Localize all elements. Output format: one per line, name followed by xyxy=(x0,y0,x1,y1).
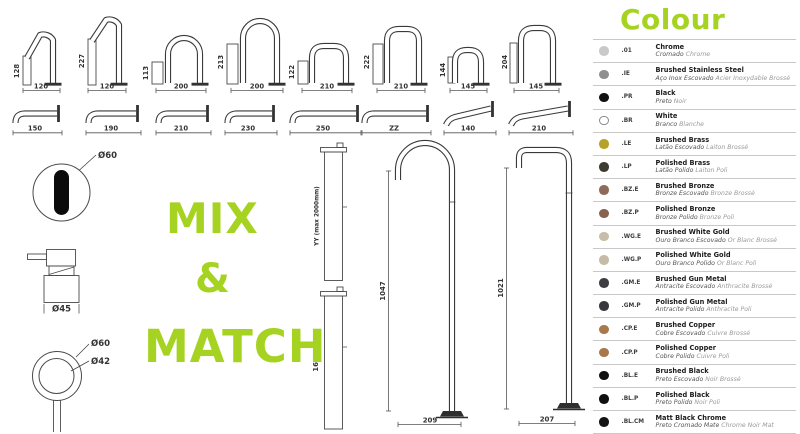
colour-legend: Colour .01ChromeCromado Chrome.IEBrushed… xyxy=(593,0,800,434)
finish-name: Chrome xyxy=(656,43,797,52)
dimension-label: 210 xyxy=(320,82,334,90)
dimension-label: 1021 xyxy=(497,278,505,298)
dimension-label: 145 xyxy=(529,82,543,90)
finish-name-translations: Latão Escovado Laiton Brossé xyxy=(656,144,797,152)
riser-height-label: YY (max 2000mm) xyxy=(315,186,321,247)
dimension-label: 207 xyxy=(540,415,555,423)
knob-drawing: Ø60Ø42 xyxy=(33,338,111,432)
wall-spout-2: 190 xyxy=(86,105,141,135)
finish-name-pt: Antracite Polido xyxy=(656,306,707,313)
finish-name-translations: Branco Blanche xyxy=(656,121,797,129)
wall-spout-3: 210 xyxy=(156,105,211,135)
finish-names: Polished White GoldOuro Branco Polido Or… xyxy=(656,251,797,268)
finish-name: Polished Bronze xyxy=(656,205,797,214)
colour-row: .LPPolished BrassLatão Polido Laiton Pol… xyxy=(593,156,796,179)
finish-swatch-dot xyxy=(599,116,609,126)
finish-swatch-dot xyxy=(599,70,609,80)
top-spout-1: 128120 xyxy=(13,34,62,93)
top-spout-7: 144145 xyxy=(439,50,490,93)
finish-name-pt: Ouro Branco Escovado xyxy=(656,237,728,244)
finish-code: .BL.P xyxy=(622,396,656,402)
finish-swatch-dot xyxy=(599,278,609,288)
finish-names: Polished BrassLatão Polido Laiton Poli xyxy=(656,159,797,176)
finish-name: Brushed Brass xyxy=(656,136,797,145)
finish-name-pt: Preto Escovado xyxy=(656,376,706,383)
finish-name: Brushed Black xyxy=(656,367,797,376)
finish-names: Polished Gun MetalAntracite Polido Anthr… xyxy=(656,298,797,315)
dimension-label: 222 xyxy=(363,55,371,69)
wall-spout-8: 210 xyxy=(509,101,573,135)
finish-name: Brushed Copper xyxy=(656,321,797,330)
finish-name: Polished White Gold xyxy=(656,251,797,260)
wall-spout-1: 150 xyxy=(13,105,62,135)
dimension-label: 209 xyxy=(423,416,438,424)
finish-name-translations: Aço Inox Escovado Acier Inoxydable Bross… xyxy=(656,75,797,83)
finish-name: Black xyxy=(656,89,797,98)
finish-name-pt: Preto xyxy=(656,98,674,105)
dimension-label: 213 xyxy=(217,55,225,69)
top-spout-3: 113200 xyxy=(142,38,209,93)
finish-name-pt: Preto Polido xyxy=(656,399,695,406)
colour-list: .01ChromeCromado Chrome.IEBrushed Stainl… xyxy=(593,39,796,434)
finish-name-pt: Latão Polido xyxy=(656,167,696,174)
colour-title: Colour xyxy=(620,3,725,36)
top-spout-5: 122210 xyxy=(288,46,355,93)
finish-names: BlackPreto Noir xyxy=(656,89,797,106)
colour-row: .GM.PPolished Gun MetalAntracite Polido … xyxy=(593,295,796,318)
colour-row: .CP.PPolished CopperCobre Polido Cuivre … xyxy=(593,341,796,364)
finish-name-translations: Bronze Escovado Bronze Brossé xyxy=(656,190,797,198)
finish-name-pt: Latão Escovado xyxy=(656,144,707,151)
finish-name-pt: Cobre Polido xyxy=(656,353,697,360)
finish-code: .LP xyxy=(622,164,656,170)
colour-row: .01ChromeCromado Chrome xyxy=(593,40,796,63)
dimension-label: ZZ xyxy=(389,125,399,133)
finish-name-translations: Cromado Chrome xyxy=(656,51,797,59)
colour-row: .BRWhiteBranco Blanche xyxy=(593,110,796,133)
finish-swatch-dot xyxy=(599,417,609,427)
finish-name-pt: Cobre Escovado xyxy=(656,330,708,337)
finish-name-translations: Ouro Branco Escovado Or Blanc Brossé xyxy=(656,237,797,245)
finish-names: Brushed BlackPreto Escovado Noir Brossé xyxy=(656,367,797,384)
finish-swatch-dot xyxy=(599,325,609,335)
finish-swatch-dot xyxy=(599,348,609,358)
finish-name-fr: Or Blanc Poli xyxy=(717,260,756,267)
dimension-label: 210 xyxy=(532,125,546,133)
finish-name-fr: Laiton Poli xyxy=(695,167,727,174)
finish-names: Brushed White GoldOuro Branco Escovado O… xyxy=(656,228,797,245)
finish-name-fr: Noir Poli xyxy=(694,399,720,406)
finish-names: Brushed Stainless SteelAço Inox Escovado… xyxy=(656,66,797,83)
finish-name-pt: Bronze Polido xyxy=(656,214,700,221)
dimension-label: 1047 xyxy=(379,281,387,301)
dimension-label: 120 xyxy=(34,82,48,90)
finish-names: Matt Black ChromePreto Cromado Mate Chro… xyxy=(656,414,797,431)
finish-names: Brushed Gun MetalAntracite Escovado Anth… xyxy=(656,275,797,292)
finish-names: Polished CopperCobre Polido Cuivre Poli xyxy=(656,344,797,361)
finish-name-fr: Anthracite Brossé xyxy=(717,283,772,290)
finish-names: ChromeCromado Chrome xyxy=(656,43,797,60)
finish-swatch-dot xyxy=(599,301,609,311)
finish-code: .PR xyxy=(622,94,656,100)
finish-swatch-dot xyxy=(599,46,609,56)
ceiling-riser-custom: YY (max 2000mm) xyxy=(315,143,348,281)
finish-name-translations: Preto Escovado Noir Brossé xyxy=(656,376,797,384)
dimension-label: 250 xyxy=(316,125,330,133)
finish-name-fr: Chrome Noir Mat xyxy=(721,422,774,429)
finish-name-fr: Laiton Brossé xyxy=(706,144,748,151)
knob-outer-diameter-label: Ø60 xyxy=(91,338,110,349)
finish-code: .CP.E xyxy=(622,326,656,332)
colour-row: .PRBlackPreto Noir xyxy=(593,86,796,109)
finish-name-pt: Antracite Escovado xyxy=(656,283,718,290)
finish-code: .IE xyxy=(622,71,656,77)
finish-swatch-dot xyxy=(599,394,609,404)
finish-code: .CP.P xyxy=(622,350,656,356)
finish-code: .BL.E xyxy=(622,373,656,379)
finish-swatch-dot xyxy=(599,232,609,242)
finish-name-translations: Preto Cromado Mate Chrome Noir Mat xyxy=(656,422,797,430)
finish-name-translations: Antracite Polido Anthracite Poli xyxy=(656,306,797,314)
finish-code: .BR xyxy=(622,118,656,124)
finish-name-pt: Bronze Escovado xyxy=(656,190,711,197)
match-text: MATCH xyxy=(144,324,327,369)
floor-spout-1: 1047209 xyxy=(379,143,468,427)
wall-spout-4: 230 xyxy=(225,105,277,135)
wall-spout-6: ZZ xyxy=(362,105,431,135)
ampersand-text: & xyxy=(195,259,231,299)
finish-name-pt: Preto Cromado Mate xyxy=(656,422,722,429)
colour-row: .BL.PPolished BlackPreto Polido Noir Pol… xyxy=(593,388,796,411)
dimension-label: 200 xyxy=(174,82,188,90)
top-spout-4: 213200 xyxy=(217,21,286,93)
finish-code: .GM.P xyxy=(622,303,656,309)
colour-row: .WG.PPolished White GoldOuro Branco Poli… xyxy=(593,249,796,272)
finish-name-pt: Aço Inox Escovado xyxy=(656,75,716,82)
finish-names: Brushed BrassLatão Escovado Laiton Bross… xyxy=(656,136,797,153)
finish-name-translations: Preto Polido Noir Poli xyxy=(656,399,797,407)
finish-swatch-dot xyxy=(599,185,609,195)
finish-name: Brushed Stainless Steel xyxy=(656,66,797,75)
sensor-plate-drawing: Ø60 xyxy=(33,150,117,221)
finish-code: .WG.P xyxy=(622,257,656,263)
finish-name-pt: Cromado xyxy=(656,51,686,58)
colour-row: .BZ.PPolished BronzeBronze Polido Bronze… xyxy=(593,202,796,225)
colour-row: .BL.EBrushed BlackPreto Escovado Noir Br… xyxy=(593,365,796,388)
finish-code: .BL.CM xyxy=(622,419,656,425)
colour-row: .CP.EBrushed CopperCobre Escovado Cuivre… xyxy=(593,318,796,341)
finish-name: Polished Black xyxy=(656,391,797,400)
finish-name-fr: Cuivre Poli xyxy=(697,353,730,360)
finish-name-fr: Acier Inoxydable Brossé xyxy=(716,75,791,82)
dimension-label: 122 xyxy=(288,65,296,79)
finish-names: Brushed CopperCobre Escovado Cuivre Bros… xyxy=(656,321,797,338)
dimension-label: 120 xyxy=(100,82,114,90)
dimension-label: 113 xyxy=(142,66,150,80)
dimension-label: 145 xyxy=(461,82,475,90)
finish-swatch-dot xyxy=(599,371,609,381)
finish-code: .01 xyxy=(622,48,656,54)
wall-spout-5: 250 xyxy=(290,105,361,135)
finish-swatch-dot xyxy=(599,139,609,149)
finish-code: .BZ.P xyxy=(622,210,656,216)
finish-name: Brushed White Gold xyxy=(656,228,797,237)
finish-name-fr: Blanche xyxy=(679,121,704,128)
colour-row: .WG.EBrushed White GoldOuro Branco Escov… xyxy=(593,226,796,249)
finish-name: Brushed Gun Metal xyxy=(656,275,797,284)
dimension-label: 144 xyxy=(439,63,447,77)
finish-names: WhiteBranco Blanche xyxy=(656,112,797,129)
knob-inner-diameter-label: Ø42 xyxy=(91,356,110,367)
colour-row: .IEBrushed Stainless SteelAço Inox Escov… xyxy=(593,63,796,86)
dimension-label: 200 xyxy=(250,82,264,90)
dimension-label: 140 xyxy=(461,125,475,133)
top-spout-6: 222210 xyxy=(363,29,428,93)
finish-names: Brushed BronzeBronze Escovado Bronze Bro… xyxy=(656,182,797,199)
finish-code: .BZ.E xyxy=(622,187,656,193)
handle-diameter-label: Ø45 xyxy=(52,304,71,315)
finish-name-fr: Noir xyxy=(674,98,687,105)
dimension-label: 150 xyxy=(28,125,42,133)
finish-name-fr: Anthracite Poli xyxy=(706,306,751,313)
dimension-label: 204 xyxy=(501,55,509,69)
finish-name: Polished Copper xyxy=(656,344,797,353)
finish-swatch-dot xyxy=(599,162,609,172)
finish-name-translations: Preto Noir xyxy=(656,98,797,106)
finish-name-translations: Antracite Escovado Anthracite Brossé xyxy=(656,283,797,291)
floor-spout-2: 1021207 xyxy=(497,150,585,426)
wall-spout-7: 140 xyxy=(444,101,496,135)
finish-name-fr: Bronze Brossé xyxy=(710,190,754,197)
finish-name-translations: Bronze Polido Bronze Poli xyxy=(656,214,797,222)
colour-row: .GM.EBrushed Gun MetalAntracite Escovado… xyxy=(593,272,796,295)
mixer-handle-drawing: Ø45 xyxy=(28,250,80,315)
finish-name-translations: Latão Polido Laiton Poli xyxy=(656,167,797,175)
finish-swatch-dot xyxy=(599,255,609,265)
finish-name-fr: Or Blanc Brossé xyxy=(728,237,777,244)
finish-name-translations: Cobre Escovado Cuivre Brossé xyxy=(656,330,797,338)
dimension-label: 210 xyxy=(394,82,408,90)
finish-name-fr: Bronze Poli xyxy=(700,214,734,221)
dimension-label: 227 xyxy=(78,54,86,68)
catalog-page: 1281202271201132002132001222102222101441… xyxy=(0,0,800,434)
finish-name-translations: Ouro Branco Polido Or Blanc Poli xyxy=(656,260,797,268)
finish-name-pt: Branco xyxy=(656,121,680,128)
finish-name-fr: Noir Brossé xyxy=(705,376,740,383)
dimension-label: 230 xyxy=(241,125,255,133)
finish-name: Polished Brass xyxy=(656,159,797,168)
colour-row: .LEBrushed BrassLatão Escovado Laiton Br… xyxy=(593,133,796,156)
finish-names: Polished BronzeBronze Polido Bronze Poli xyxy=(656,205,797,222)
top-spout-8: 204145 xyxy=(501,28,562,93)
dimension-label: 190 xyxy=(104,125,118,133)
finish-name: White xyxy=(656,112,797,121)
colour-row: .BZ.EBrushed BronzeBronze Escovado Bronz… xyxy=(593,179,796,202)
sensor-diameter-label: Ø60 xyxy=(98,150,117,161)
finish-name-pt: Ouro Branco Polido xyxy=(656,260,717,267)
finish-code: .GM.E xyxy=(622,280,656,286)
finish-code: .LE xyxy=(622,141,656,147)
finish-code: .WG.E xyxy=(622,234,656,240)
finish-name-fr: Chrome xyxy=(686,51,710,58)
top-spout-2: 227120 xyxy=(78,19,128,93)
finish-name-fr: Cuivre Brossé xyxy=(707,330,750,337)
dimension-label: 128 xyxy=(13,64,21,78)
mix-text: MIX xyxy=(166,198,259,240)
finish-names: Polished BlackPreto Polido Noir Poli xyxy=(656,391,797,408)
finish-swatch-dot xyxy=(599,93,609,103)
finish-swatch-dot xyxy=(599,209,609,219)
dimension-label: 210 xyxy=(174,125,188,133)
colour-row: .BL.CMMatt Black ChromePreto Cromado Mat… xyxy=(593,411,796,434)
finish-name-translations: Cobre Polido Cuivre Poli xyxy=(656,353,797,361)
